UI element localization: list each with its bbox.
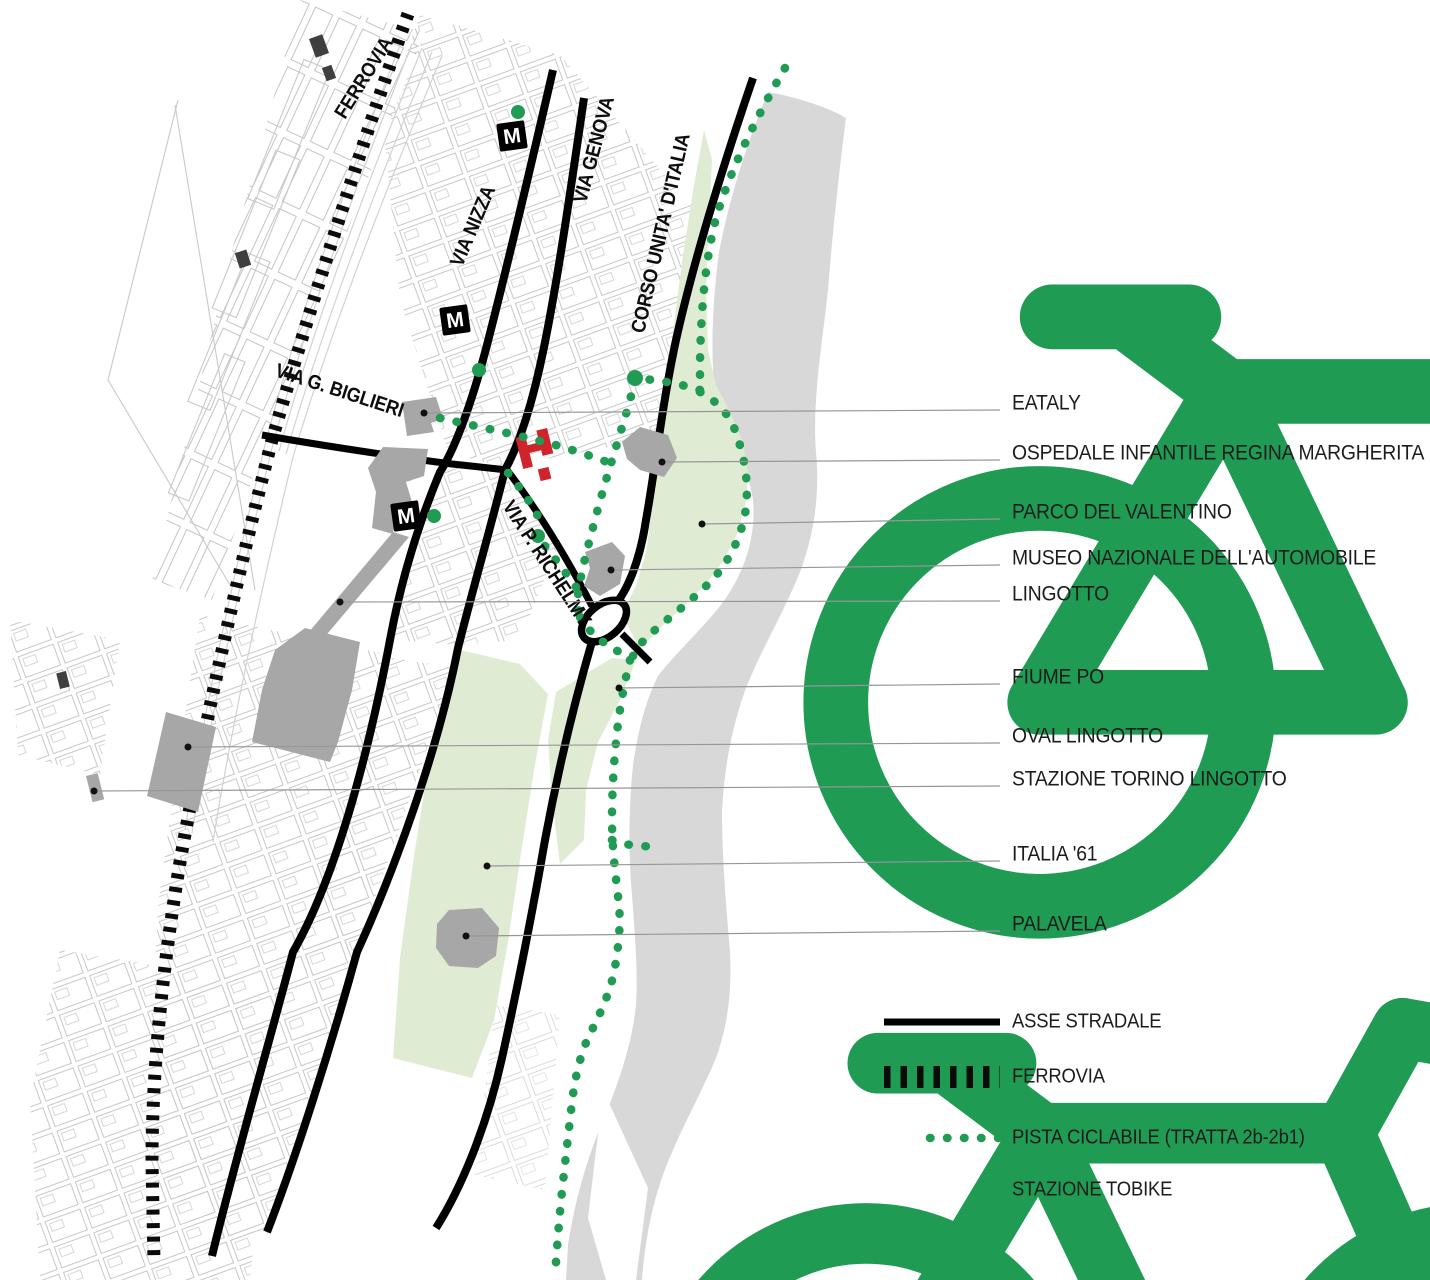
- leader-dot: [185, 744, 192, 751]
- tobike-station-dot: [427, 509, 441, 523]
- legend-label: STAZIONE TOBIKE: [1012, 1178, 1172, 1201]
- tobike-station-dot: [472, 363, 486, 377]
- legend-label: PISTA CICLABILE (TRATTA 2b-2b1): [1012, 1126, 1305, 1149]
- leader-dot: [608, 567, 615, 574]
- leader-dot: [463, 933, 470, 940]
- green-dot-swatch: [978, 1182, 995, 1199]
- museo-automobile-building: [584, 542, 625, 596]
- leader-dot: [421, 410, 428, 417]
- metro-station-icon: M: [496, 120, 528, 152]
- blocks-zone: [30, 950, 280, 1280]
- legend-label: FERROVIA: [1012, 1065, 1105, 1088]
- leader-dot: [659, 459, 666, 466]
- leader-line: [466, 931, 1000, 936]
- callout-label: ITALIA '61: [1012, 842, 1097, 866]
- callout-label: PARCO DEL VALENTINO: [1012, 500, 1232, 524]
- map-figure: M M M FERROVIA VIA NIZZA VIA GENOVA CORS…: [0, 0, 1430, 1280]
- callout-label: MUSEO NAZIONALE DELL'AUTOMOBILE: [1012, 546, 1376, 570]
- legend-item-asse-stradale: ASSE STRADALE: [884, 1010, 1162, 1033]
- callout-label: EATALY: [1012, 391, 1081, 415]
- blocks-zone: [10, 620, 120, 775]
- metro-m-glyph: M: [502, 124, 523, 149]
- legend-label: ASSE STRADALE: [1012, 1010, 1162, 1033]
- callout-label: OSPEDALE INFANTILE REGINA MARGHERITA: [1012, 441, 1425, 465]
- leader-dot: [337, 599, 344, 606]
- map-canvas: M M M FERROVIA VIA NIZZA VIA GENOVA CORS…: [0, 0, 1430, 1280]
- metro-m-glyph: M: [445, 308, 466, 333]
- tobike-station-dot: [511, 105, 525, 119]
- tobike-station-dot: [627, 370, 643, 386]
- metro-station-icon: M: [439, 304, 471, 336]
- leader-dot: [484, 863, 491, 870]
- leader-dot: [699, 521, 706, 528]
- leader-dot: [616, 685, 623, 692]
- stazione-torino-lingotto-building: [86, 773, 104, 802]
- metro-station-icon: M: [390, 500, 422, 532]
- metro-m-glyph: M: [396, 504, 417, 529]
- callout-label: LINGOTTO: [1012, 582, 1109, 606]
- leader-dot: [91, 788, 98, 795]
- callout-label: FIUME PO: [1012, 665, 1104, 689]
- callout-label: PALAVELA: [1012, 912, 1107, 936]
- callout-label: STAZIONE TORINO LINGOTTO: [1012, 767, 1287, 791]
- callout-label: OVAL LINGOTTO: [1012, 724, 1163, 748]
- bicycle-icon: [836, 280, 1430, 907]
